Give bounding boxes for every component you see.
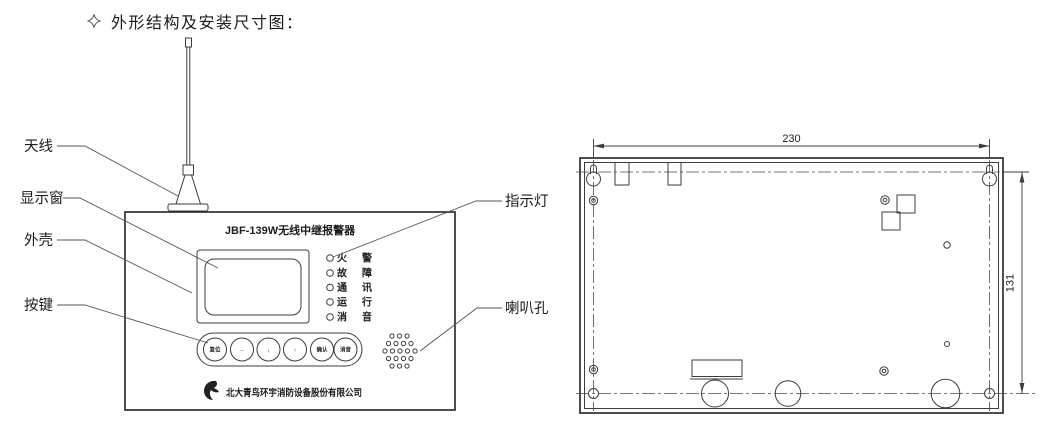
keypad-button-label: 复位 xyxy=(208,346,221,354)
indicator-label: 故障 xyxy=(337,267,387,280)
callout-speaker-hole: 喇叭孔 xyxy=(420,300,549,351)
screw-hole xyxy=(880,367,888,375)
device-enclosure xyxy=(125,212,455,410)
indicator-label: 火警 xyxy=(337,252,387,265)
keypad-button: 复位 xyxy=(204,338,227,361)
top-slot xyxy=(668,163,681,185)
display-window xyxy=(197,250,309,323)
indicator-label: 消音 xyxy=(337,311,387,324)
indicator-leds: 火警 故障 通讯 运行 消音 xyxy=(327,252,387,324)
company-name: 北大青鸟环宇消防设备股份有限公司 xyxy=(226,387,362,399)
indicator-label: 通讯 xyxy=(337,281,387,294)
callout-display-window: 显示窗 xyxy=(20,189,218,268)
dimension-height: 131 xyxy=(1002,172,1029,394)
callout-indicator-light: 指示灯 xyxy=(333,193,549,257)
keypad-button-label: 确认 xyxy=(316,346,328,354)
technical-drawing: JBF-139W无线中继报警器 火警 故障 通讯 xyxy=(0,0,1055,421)
keypad-button-label: 消音 xyxy=(340,346,352,354)
width-dim-value: 230 xyxy=(782,133,800,145)
callout-antenna: 天线 xyxy=(24,138,178,196)
indicator-row: 火警 xyxy=(327,252,387,265)
top-slot xyxy=(615,163,629,185)
led-circle xyxy=(327,270,334,277)
led-circle xyxy=(327,284,334,291)
keypad-button: 消音 xyxy=(334,338,357,361)
keypad-button-label: ↑ xyxy=(294,348,297,354)
indicator-light-label: 指示灯 xyxy=(505,193,549,210)
keypad-button: ↓ xyxy=(257,338,280,361)
indicator-label: 运行 xyxy=(337,296,387,309)
led-circle xyxy=(327,255,334,262)
company-brand: 北大青鸟环宇消防设备股份有限公司 xyxy=(204,381,362,400)
keypad-button-label: ↓ xyxy=(267,348,270,354)
antenna xyxy=(168,38,208,211)
display-window-label: 显示窗 xyxy=(20,189,64,207)
small-hole xyxy=(945,342,950,347)
speaker-hole-label: 喇叭孔 xyxy=(505,300,549,317)
keypad: 复位 → ↓ ↑ 确认 xyxy=(197,333,362,366)
rear-view-diagram: 230 131 xyxy=(576,133,1036,413)
indicator-row: 运行 xyxy=(327,296,387,309)
screw-hole xyxy=(881,196,889,204)
speaker-holes xyxy=(383,334,417,368)
center-lines xyxy=(576,160,1036,411)
manual-page: 外形结构及安装尺寸图： JBF-139W无线中继报警器 xyxy=(0,0,1055,421)
indicator-row: 通讯 xyxy=(327,281,387,294)
keys-label: 按键 xyxy=(24,297,53,314)
led-circle xyxy=(327,314,334,321)
keypad-button: 确认 xyxy=(311,338,334,361)
device-model-title: JBF-139W无线中继报警器 xyxy=(225,223,356,237)
callout-keys: 按键 xyxy=(24,297,208,343)
led-circle xyxy=(327,299,334,306)
bottom-cutout xyxy=(690,360,743,379)
callout-housing: 外壳 xyxy=(24,232,192,293)
antenna-label: 天线 xyxy=(24,138,53,155)
company-logo-bird-icon xyxy=(204,381,219,400)
rear-plate-inner-edge xyxy=(585,163,999,409)
indicator-row: 故障 xyxy=(327,267,387,280)
housing-label: 外壳 xyxy=(24,232,53,249)
rear-plate-outline xyxy=(580,158,1003,413)
indicator-row: 消音 xyxy=(327,311,387,324)
keypad-button-label: → xyxy=(239,348,245,354)
front-view-diagram: JBF-139W无线中继报警器 火警 故障 通讯 xyxy=(20,38,549,410)
keypad-button: → xyxy=(231,338,254,361)
dimension-width: 230 xyxy=(594,133,990,158)
small-hole xyxy=(944,242,950,248)
keypad-button: ↑ xyxy=(284,338,307,361)
height-dim-value: 131 xyxy=(1005,274,1017,292)
